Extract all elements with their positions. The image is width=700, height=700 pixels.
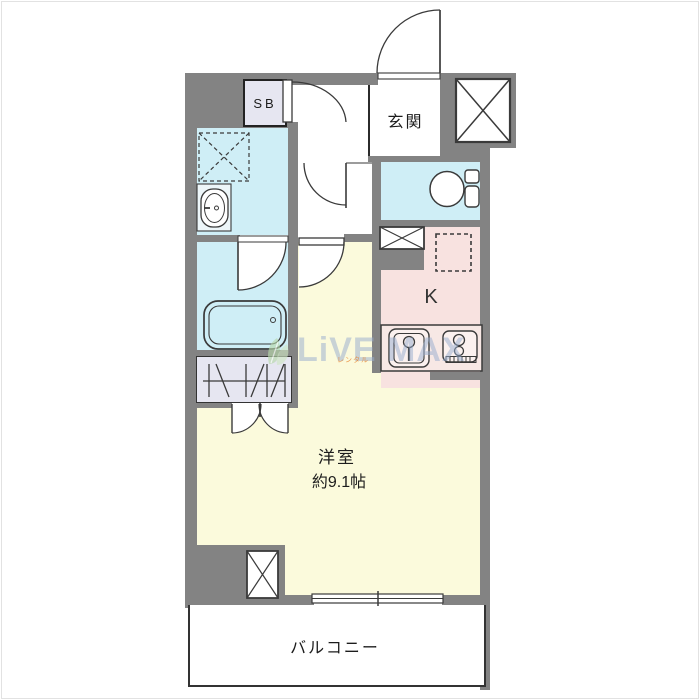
image-border xyxy=(1,1,699,699)
floorplan-canvas: SB xyxy=(0,0,700,700)
